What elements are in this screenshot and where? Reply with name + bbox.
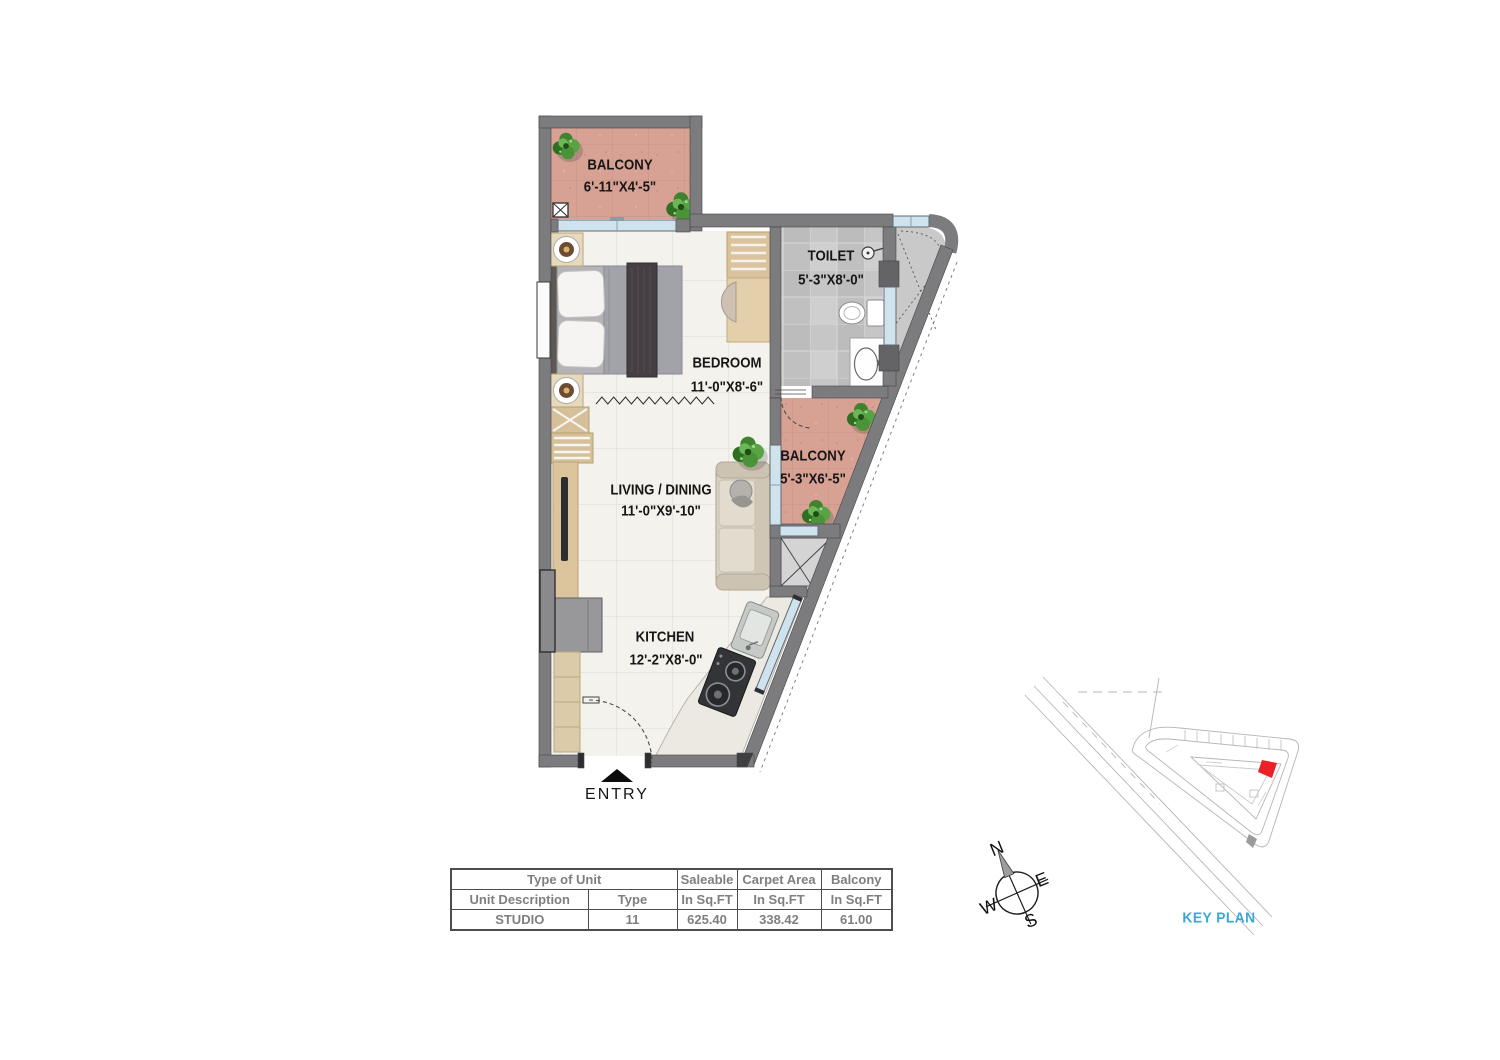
subheader-carpet-sqft: In Sq.FT: [737, 890, 821, 910]
door-handle-icon: [610, 217, 624, 221]
wall-toilet-bottom: [812, 386, 888, 398]
value-type: 11: [588, 910, 677, 931]
tall-cabinet: [540, 570, 555, 652]
wall-window-block: [879, 345, 899, 371]
subheader-saleable-sqft: In Sq.FT: [677, 890, 737, 910]
pillow: [557, 320, 605, 368]
subheader-type: Type: [588, 890, 677, 910]
room-label-balcony-right: BALCONY: [780, 448, 845, 465]
wardrobe: [727, 232, 770, 278]
header-type-of-unit: Type of Unit: [451, 869, 677, 890]
room-label-toilet: TOILET: [808, 248, 855, 265]
refrigerator: [554, 598, 602, 652]
wall-bottom-left: [539, 755, 583, 767]
entry-arrow-icon: [601, 769, 633, 782]
subheader-balcony-sqft: In Sq.FT: [821, 890, 892, 910]
entry-label: ENTRY: [585, 786, 649, 804]
wall-toilet-right: [883, 227, 896, 261]
wall-stub: [551, 219, 558, 232]
floor-plan-page: BALCONY 6'-11"X4'-5" TOILET 5'-3"X8'-0" …: [0, 0, 1500, 1060]
key-plan: [1025, 677, 1299, 935]
slatted-bench: [551, 433, 593, 463]
table-subheader-row: Unit Description Type In Sq.FT In Sq.FT …: [451, 890, 892, 910]
room-label-bedroom: BEDROOM: [693, 355, 762, 372]
kitchen-cabinet: [554, 652, 580, 752]
wall-balcony-top: [539, 116, 702, 128]
sofa: [716, 462, 770, 590]
door-jamb: [578, 753, 584, 768]
bedside-table: [550, 374, 583, 407]
key-plan-title: KEY PLAN: [1182, 910, 1255, 927]
drain-icon: [553, 203, 568, 217]
pillow: [557, 270, 605, 318]
wall-left: [539, 116, 551, 767]
wall-balcony2-left-upper: [770, 398, 781, 445]
value-carpet-area: 338.42: [737, 910, 821, 931]
room-dims-toilet: 5'-3"X8'-0": [798, 272, 864, 289]
wall-toilet-left: [770, 227, 781, 398]
tv: [561, 477, 568, 561]
wall-toilet-right-lower: [883, 371, 896, 386]
header-carpet-area: Carpet Area: [737, 869, 821, 890]
room-label-kitchen: KITCHEN: [636, 629, 695, 646]
room-dims-balcony-top: 6'-11"X4'-5": [584, 179, 656, 196]
wall-top: [690, 214, 893, 227]
door-jamb: [645, 753, 651, 768]
key-plan-road: [1025, 677, 1272, 935]
room-dims-kitchen: 12'-2"X8'-0": [629, 652, 702, 669]
wall-sofa: [770, 586, 807, 597]
tv-console: [553, 462, 578, 598]
window-balcony-right: [780, 526, 818, 536]
wall-window-block: [879, 261, 899, 287]
side-stool: [551, 407, 589, 433]
subheader-unit-description: Unit Description: [451, 890, 588, 910]
key-plan-site: [1132, 727, 1298, 848]
room-dims-balcony-right: 5'-3"X6'-5": [780, 471, 846, 488]
table-value-row: STUDIO 11 625.40 338.42 61.00: [451, 910, 892, 931]
wall-shaft-left: [537, 282, 550, 358]
value-balcony: 61.00: [821, 910, 892, 931]
value-saleable: 625.40: [677, 910, 737, 931]
wall-stub: [676, 219, 690, 232]
room-dims-living: 11'-0"X9'-10": [621, 503, 701, 520]
header-saleable: Saleable: [677, 869, 737, 890]
window-toilet: [884, 287, 896, 345]
room-dims-bedroom: 11'-0"X8'-6": [691, 379, 763, 396]
room-label-living: LIVING / DINING: [610, 482, 711, 499]
unit-details-table: Type of Unit Saleable Carpet Area Balcon…: [450, 868, 893, 931]
value-unit-description: STUDIO: [451, 910, 588, 931]
table-header-row: Type of Unit Saleable Carpet Area Balcon…: [451, 869, 892, 890]
bedside-table: [550, 233, 583, 266]
room-label-balcony-top: BALCONY: [587, 157, 652, 174]
header-balcony: Balcony: [821, 869, 892, 890]
bed: [551, 263, 682, 377]
